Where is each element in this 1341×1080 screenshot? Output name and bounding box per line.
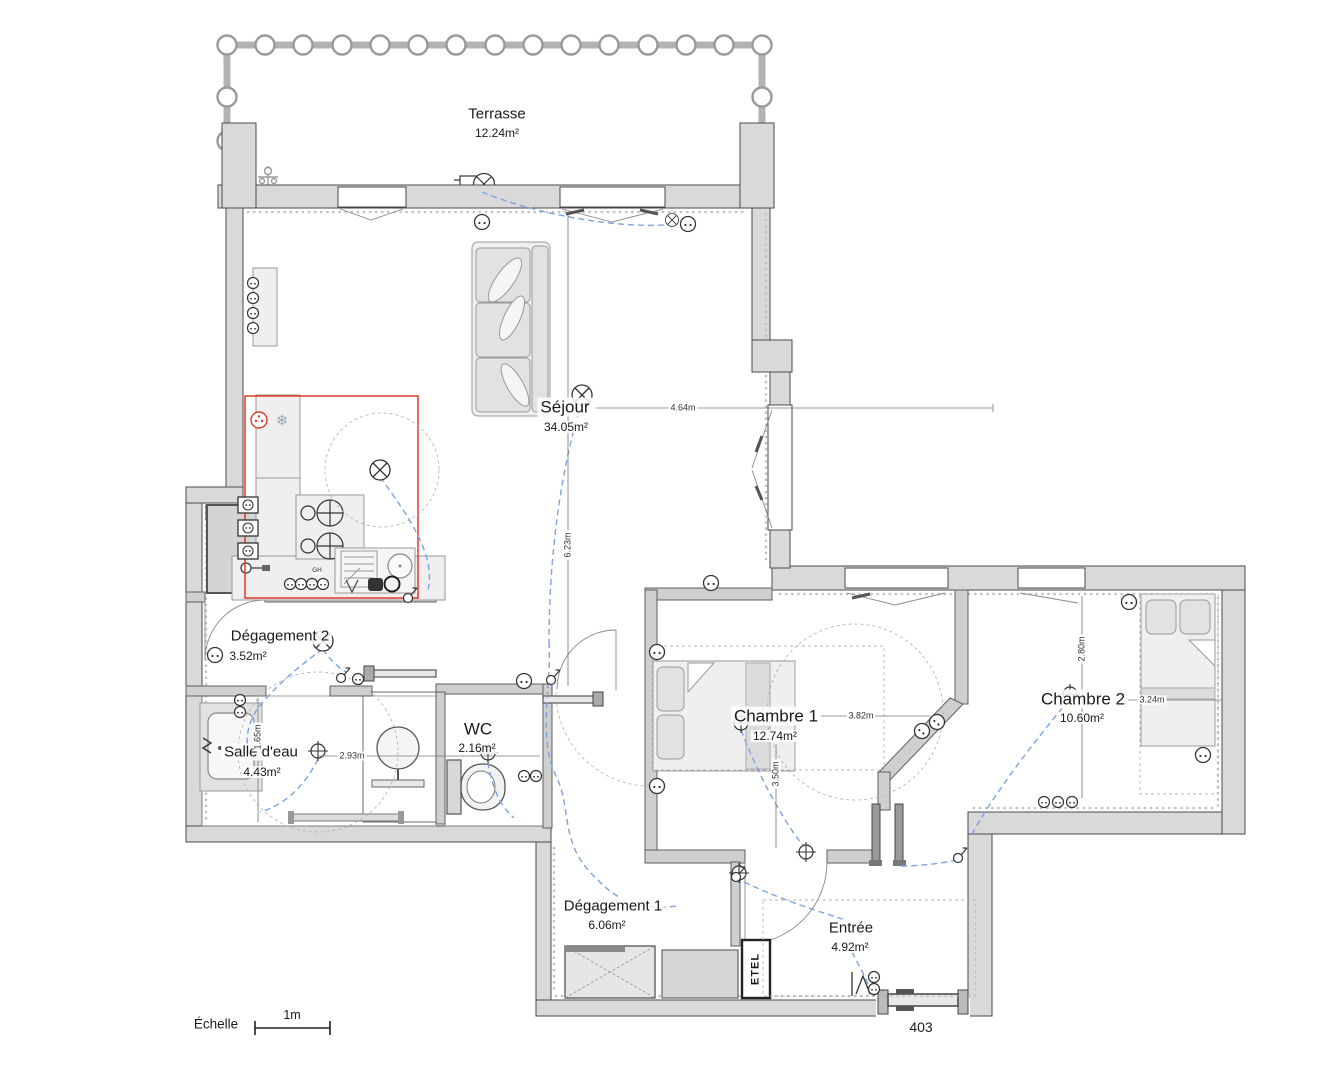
floor-plan-drawing [0,0,1341,1080]
kitchen-tall-unit [256,478,300,558]
hob-icon [368,578,383,591]
gh-label: GH [312,568,322,575]
room-area-chambre2: 10.60m² [1058,712,1106,724]
sofa [472,242,550,416]
dim-salle-deau-width: 2.93m [337,752,366,761]
pillow [1180,600,1210,634]
room-area-salle-deau: 4.43m² [241,766,282,778]
basin-shelf [372,780,424,787]
floor-plan: Terrasse 12.24m² Séjour 34.05m² Dégageme… [0,0,1341,1080]
room-area-degagement2: 3.52m² [227,650,268,662]
room-area-sejour: 34.05m² [542,421,590,433]
room-label-sejour: Séjour [537,398,592,417]
outlet-icon [208,215,1211,995]
closet-gray [662,950,738,998]
balcony-door [768,405,792,530]
dim-chambre2-width: 3.24m [1137,696,1166,705]
toilet [447,760,505,814]
room-label-chambre1: Chambre 1 [731,707,821,726]
pillow [1146,600,1176,634]
insulation-dots [206,212,1218,996]
dim-sejour-width: 4.64m [668,404,697,413]
chambre1-window [845,568,948,588]
dim-chambre1-width: 3.82m [846,712,875,721]
dim-chambre1-height: 3.50m [772,759,781,788]
room-area-chambre1: 12.74m² [751,730,799,742]
sejour-window-1 [338,187,406,207]
fridge-snowflake-icon: ❄ [276,414,289,429]
entrance-door [876,989,970,1018]
door-number: 403 [909,1020,932,1034]
dim-chambre2-height: 2.80m [1078,634,1087,663]
sliding-door-salle-deau [364,666,436,681]
red-outlet-icon [251,412,267,428]
room-area-wc: 2.16m² [456,742,497,754]
room-area-entree: 4.92m² [829,941,870,953]
room-area-degagement1: 6.06m² [586,919,627,931]
dim-salle-deau-height: 1.65m [254,722,263,751]
sejour-window-2 [560,187,665,207]
closet-x [565,946,655,998]
room-label-degagement1: Dégagement 1 [561,898,665,915]
scale-length-label: 1m [283,1009,300,1022]
room-label-entree: Entrée [826,920,876,937]
room-label-wc: WC [461,720,495,739]
chambre2-window [1018,568,1085,588]
room-label-chambre2: Chambre 2 [1038,690,1128,709]
scale-label: Échelle [194,1017,238,1031]
pillow [657,715,684,759]
room-area-terrasse: 12.24m² [473,127,521,139]
fridge [256,395,300,478]
scale-bar [255,1021,330,1035]
furniture [200,242,1218,998]
dim-sejour-height: 6.23m [564,530,573,559]
pillow [657,667,684,711]
room-label-degagement2: Dégagement 2 [228,628,332,645]
etel-label: ETEL [751,953,762,985]
pedestal-basin [377,727,419,769]
room-label-terrasse: Terrasse [465,106,529,123]
